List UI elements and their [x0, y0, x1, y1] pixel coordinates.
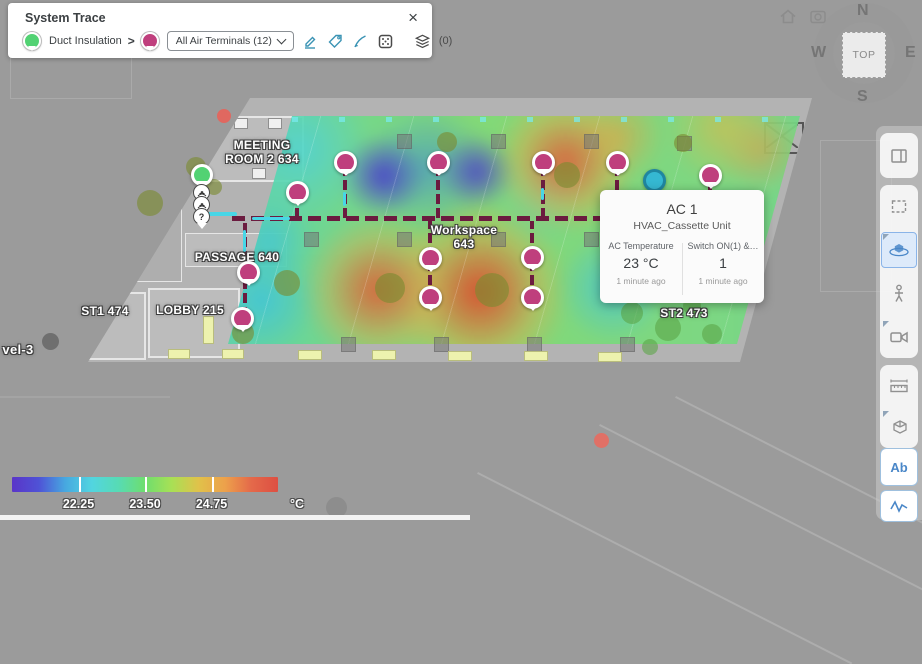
air-terminal-pin[interactable]	[532, 151, 555, 174]
air-terminal-pin[interactable]	[334, 151, 357, 174]
tree	[702, 324, 722, 344]
temperature-legend: 22.2523.5024.75 °C	[12, 477, 278, 517]
room-st1	[70, 292, 146, 360]
metric-value: 23 °C	[600, 255, 682, 271]
system-trace-panel: System Trace × Duct Insulation > All Air…	[8, 3, 432, 58]
insulation-trace-segment	[243, 230, 246, 252]
wall-marker	[234, 118, 248, 129]
draw-region-icon[interactable]	[302, 33, 319, 50]
tool-split-view[interactable]	[882, 139, 916, 173]
compass-top-face[interactable]: TOP	[842, 32, 886, 78]
structural-column	[527, 337, 542, 352]
source-label: Duct Insulation	[49, 35, 122, 47]
structural-column	[434, 337, 449, 352]
pen-icon[interactable]	[352, 33, 369, 50]
map-canvas[interactable]: MEETING ROOM 2 634 PASSAGE 640 Workspace…	[0, 0, 922, 520]
tag-icon[interactable]	[327, 33, 344, 50]
window-highlight	[222, 349, 244, 359]
air-terminal-pin[interactable]	[699, 164, 722, 187]
red-marker-dot	[594, 433, 609, 448]
insulation-trace-segment	[252, 217, 290, 220]
room-lobby	[148, 288, 240, 358]
air-terminal-pin[interactable]	[237, 261, 260, 284]
site-line	[477, 472, 852, 664]
air-terminal-pin[interactable]	[427, 151, 450, 174]
wall-marker	[252, 168, 266, 179]
tool-section-box[interactable]	[882, 410, 916, 444]
air-terminal-pin[interactable]	[419, 286, 442, 309]
structural-column	[341, 337, 356, 352]
window-highlight	[298, 350, 322, 360]
tree	[621, 302, 643, 324]
tree	[137, 190, 163, 216]
source-pin[interactable]	[191, 164, 213, 186]
window-highlight	[203, 316, 214, 344]
unit-tooltip: AC 1 HVAC_Cassette Unit AC Temperature 2…	[600, 190, 764, 303]
compass-east[interactable]: E	[905, 44, 916, 62]
legend-tick	[212, 477, 214, 492]
red-marker-dot	[217, 109, 231, 123]
dropdown-label: All Air Terminals (12)	[176, 35, 272, 47]
layers-icon[interactable]	[414, 33, 431, 50]
cursor-flag-icon	[883, 321, 889, 327]
site-line	[599, 424, 922, 598]
structural-column	[397, 134, 412, 149]
tree	[437, 132, 457, 152]
wall-marker	[200, 120, 214, 131]
tree	[674, 134, 692, 152]
site-line	[0, 396, 170, 398]
layers-count: (0)	[439, 35, 452, 47]
insulation-trace-segment	[541, 188, 544, 200]
text-tool-label: Ab	[890, 460, 907, 475]
metric-time: 1 minute ago	[600, 276, 682, 286]
structural-column	[584, 134, 599, 149]
label-st2: ST2 473	[660, 307, 707, 321]
compass-north[interactable]: N	[857, 2, 869, 20]
tool-select-region[interactable]	[882, 189, 916, 223]
tool-camera-view[interactable]	[882, 320, 916, 354]
tree	[475, 273, 509, 307]
air-terminal-pin[interactable]	[286, 181, 309, 204]
window-highlight	[168, 349, 190, 359]
compass-west[interactable]: W	[811, 44, 826, 62]
structural-column	[584, 232, 599, 247]
site-outline	[10, 55, 132, 99]
tree	[274, 270, 300, 296]
air-terminal-pin[interactable]	[521, 246, 544, 269]
label-level: vel-3	[2, 343, 33, 358]
legend-tick	[79, 477, 81, 492]
pixel-box-icon[interactable]	[377, 33, 394, 50]
cursor-flag-icon	[883, 411, 889, 417]
legend-tick-label: 23.50	[129, 497, 160, 511]
view-toolbar: Ab	[876, 126, 922, 520]
insulation-trace-segment	[343, 192, 346, 206]
chevron-down-icon	[276, 35, 286, 45]
panel-title: System Trace	[25, 11, 106, 25]
label-meeting-room: MEETING ROOM 2 634	[225, 139, 299, 167]
window-highlight	[448, 351, 472, 361]
legend-tick-label: 22.25	[63, 497, 94, 511]
cursor-flag-icon	[883, 234, 889, 240]
label-st1: ST1 474	[81, 305, 128, 319]
question-marker[interactable]: ?	[193, 208, 210, 225]
selected-air-terminal[interactable]	[643, 169, 666, 192]
close-icon[interactable]: ×	[406, 7, 420, 28]
tool-measure[interactable]	[882, 369, 916, 403]
structural-column	[304, 232, 319, 247]
structural-column	[397, 232, 412, 247]
tooltip-subtitle: HVAC_Cassette Unit	[600, 220, 764, 232]
label-lobby: LOBBY 215	[156, 304, 224, 318]
home-icon[interactable]	[777, 7, 799, 25]
temperature-heatmap	[0, 0, 922, 520]
tooltip-title: AC 1	[600, 201, 764, 217]
air-terminal-pin[interactable]	[419, 247, 442, 270]
air-terminal-pin[interactable]	[606, 151, 629, 174]
metric-label: Switch ON(1) &…	[682, 241, 764, 251]
structural-column	[491, 134, 506, 149]
tree	[554, 162, 580, 188]
metric-value: 1	[682, 255, 764, 271]
tool-orbit-3d[interactable]	[881, 232, 917, 268]
wall-marker	[268, 118, 282, 129]
tool-text-annotation[interactable]: Ab	[880, 448, 918, 486]
compass-south[interactable]: S	[857, 88, 868, 106]
metric-time: 1 minute ago	[682, 276, 764, 286]
gray-marker-dot	[42, 333, 59, 350]
tree	[642, 339, 658, 355]
label-workspace: Workspace 643	[431, 224, 498, 252]
trace-separator: >	[128, 34, 135, 48]
source-pin-icon	[23, 32, 41, 50]
target-pin-icon	[141, 32, 159, 50]
view-compass[interactable]: N E S W TOP	[809, 0, 919, 110]
label-passage: PASSAGE 640	[195, 251, 279, 265]
legend-tick	[145, 477, 147, 492]
legend-tick-label: 24.75	[196, 497, 227, 511]
air-terminal-pin[interactable]	[231, 307, 254, 330]
tool-signal-graph[interactable]	[880, 490, 918, 522]
window-highlight	[372, 350, 396, 360]
tooltip-divider	[682, 243, 683, 295]
legend-unit: °C	[290, 497, 304, 511]
plan-fixture	[160, 148, 178, 202]
air-terminals-dropdown[interactable]: All Air Terminals (12)	[167, 31, 294, 51]
structural-column	[620, 337, 635, 352]
metric-label: AC Temperature	[600, 241, 682, 251]
window-highlight	[524, 351, 548, 361]
heatmap-edge-dashes	[292, 117, 800, 122]
air-terminal-pin[interactable]	[521, 286, 544, 309]
tool-first-person[interactable]	[882, 277, 916, 311]
tree	[375, 273, 405, 303]
window-highlight	[598, 352, 622, 362]
